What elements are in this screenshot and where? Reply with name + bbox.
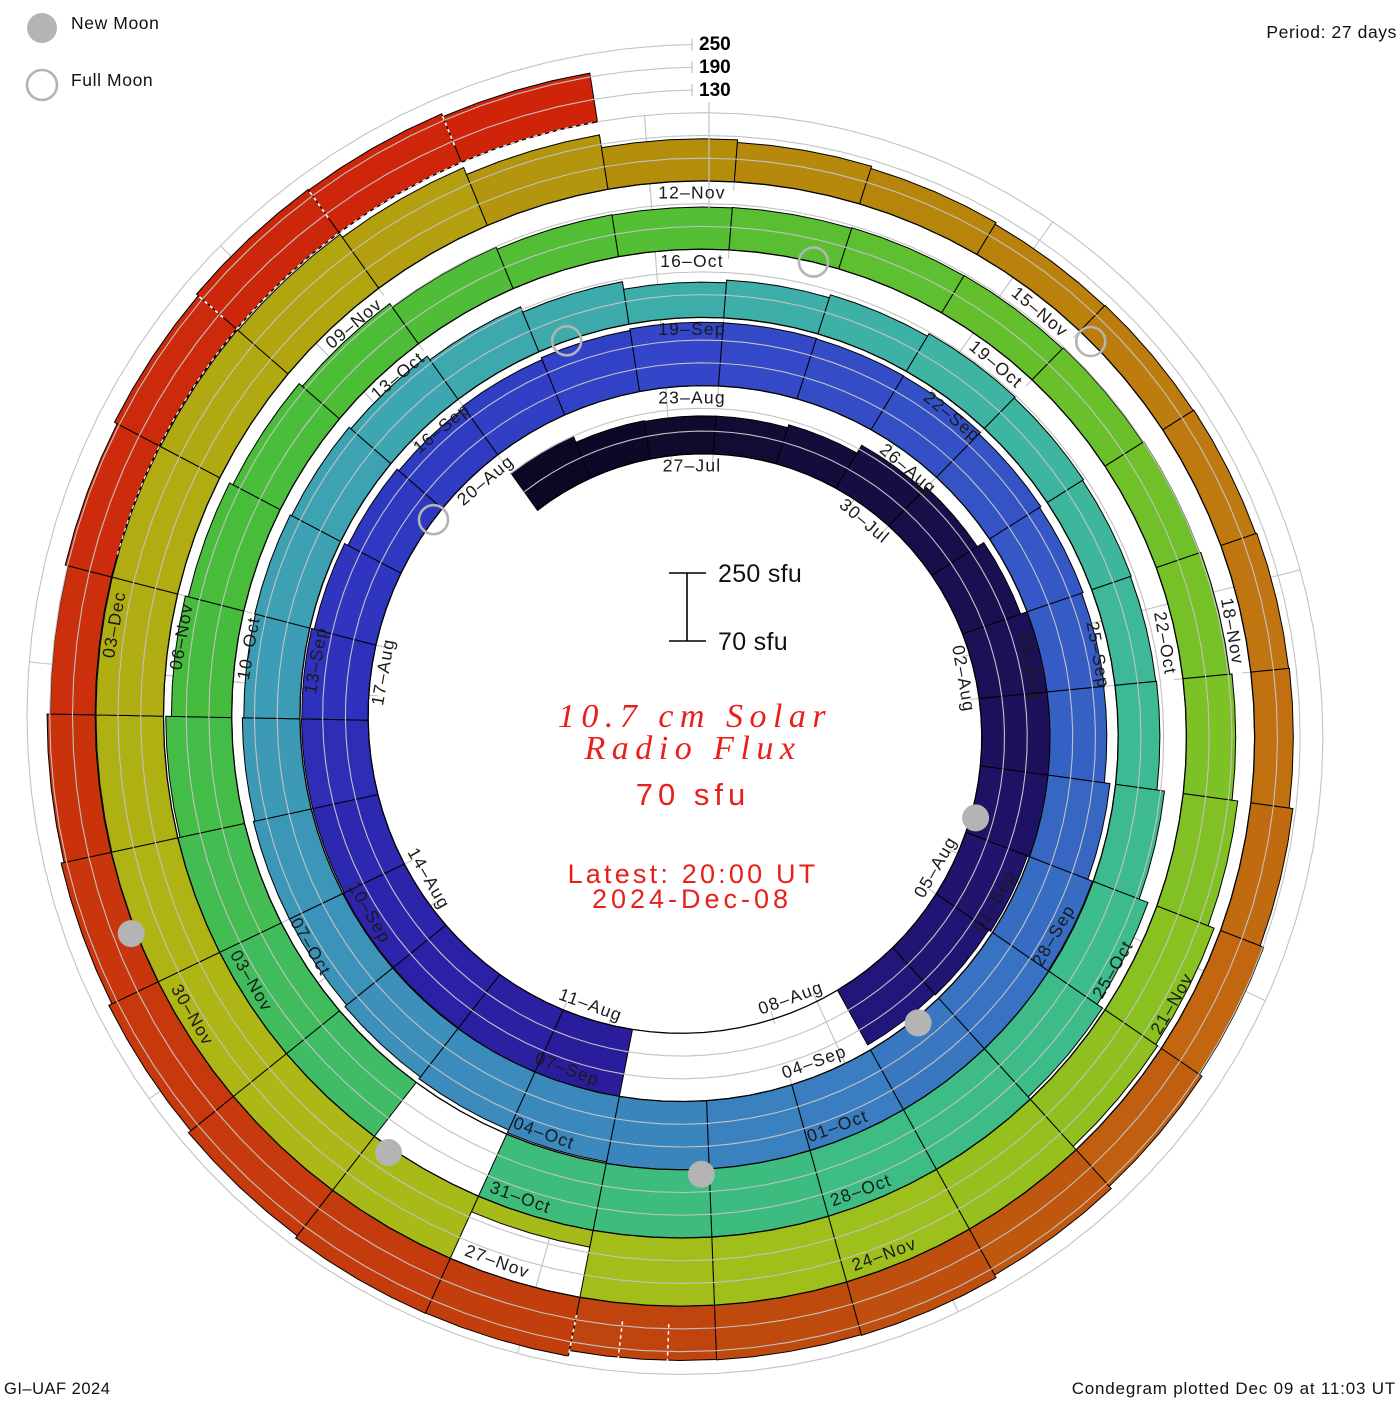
svg-text:Full Moon: Full Moon — [71, 70, 153, 90]
svg-text:Condegram plotted Dec 09 at 11: Condegram plotted Dec 09 at 11:03 UT — [1072, 1379, 1396, 1398]
svg-text:19–Sep: 19–Sep — [658, 319, 726, 339]
svg-text:70 sfu: 70 sfu — [718, 628, 788, 656]
svg-text:250: 250 — [699, 34, 731, 55]
svg-text:2024-Dec-08: 2024-Dec-08 — [592, 884, 792, 914]
svg-text:Period: 27 days: Period: 27 days — [1266, 22, 1397, 42]
svg-text:New Moon: New Moon — [71, 13, 159, 33]
svg-text:250 sfu: 250 sfu — [718, 560, 802, 588]
svg-text:130: 130 — [699, 80, 731, 101]
svg-text:GI–UAF 2024: GI–UAF 2024 — [4, 1380, 110, 1398]
svg-text:23–Aug: 23–Aug — [658, 387, 726, 407]
svg-text:Radio Flux: Radio Flux — [583, 730, 801, 767]
svg-text:16–Oct: 16–Oct — [660, 251, 724, 271]
svg-text:12–Nov: 12–Nov — [658, 183, 726, 203]
svg-text:70 sfu: 70 sfu — [636, 777, 750, 812]
svg-text:27–Jul: 27–Jul — [663, 456, 722, 476]
svg-text:190: 190 — [699, 57, 731, 78]
